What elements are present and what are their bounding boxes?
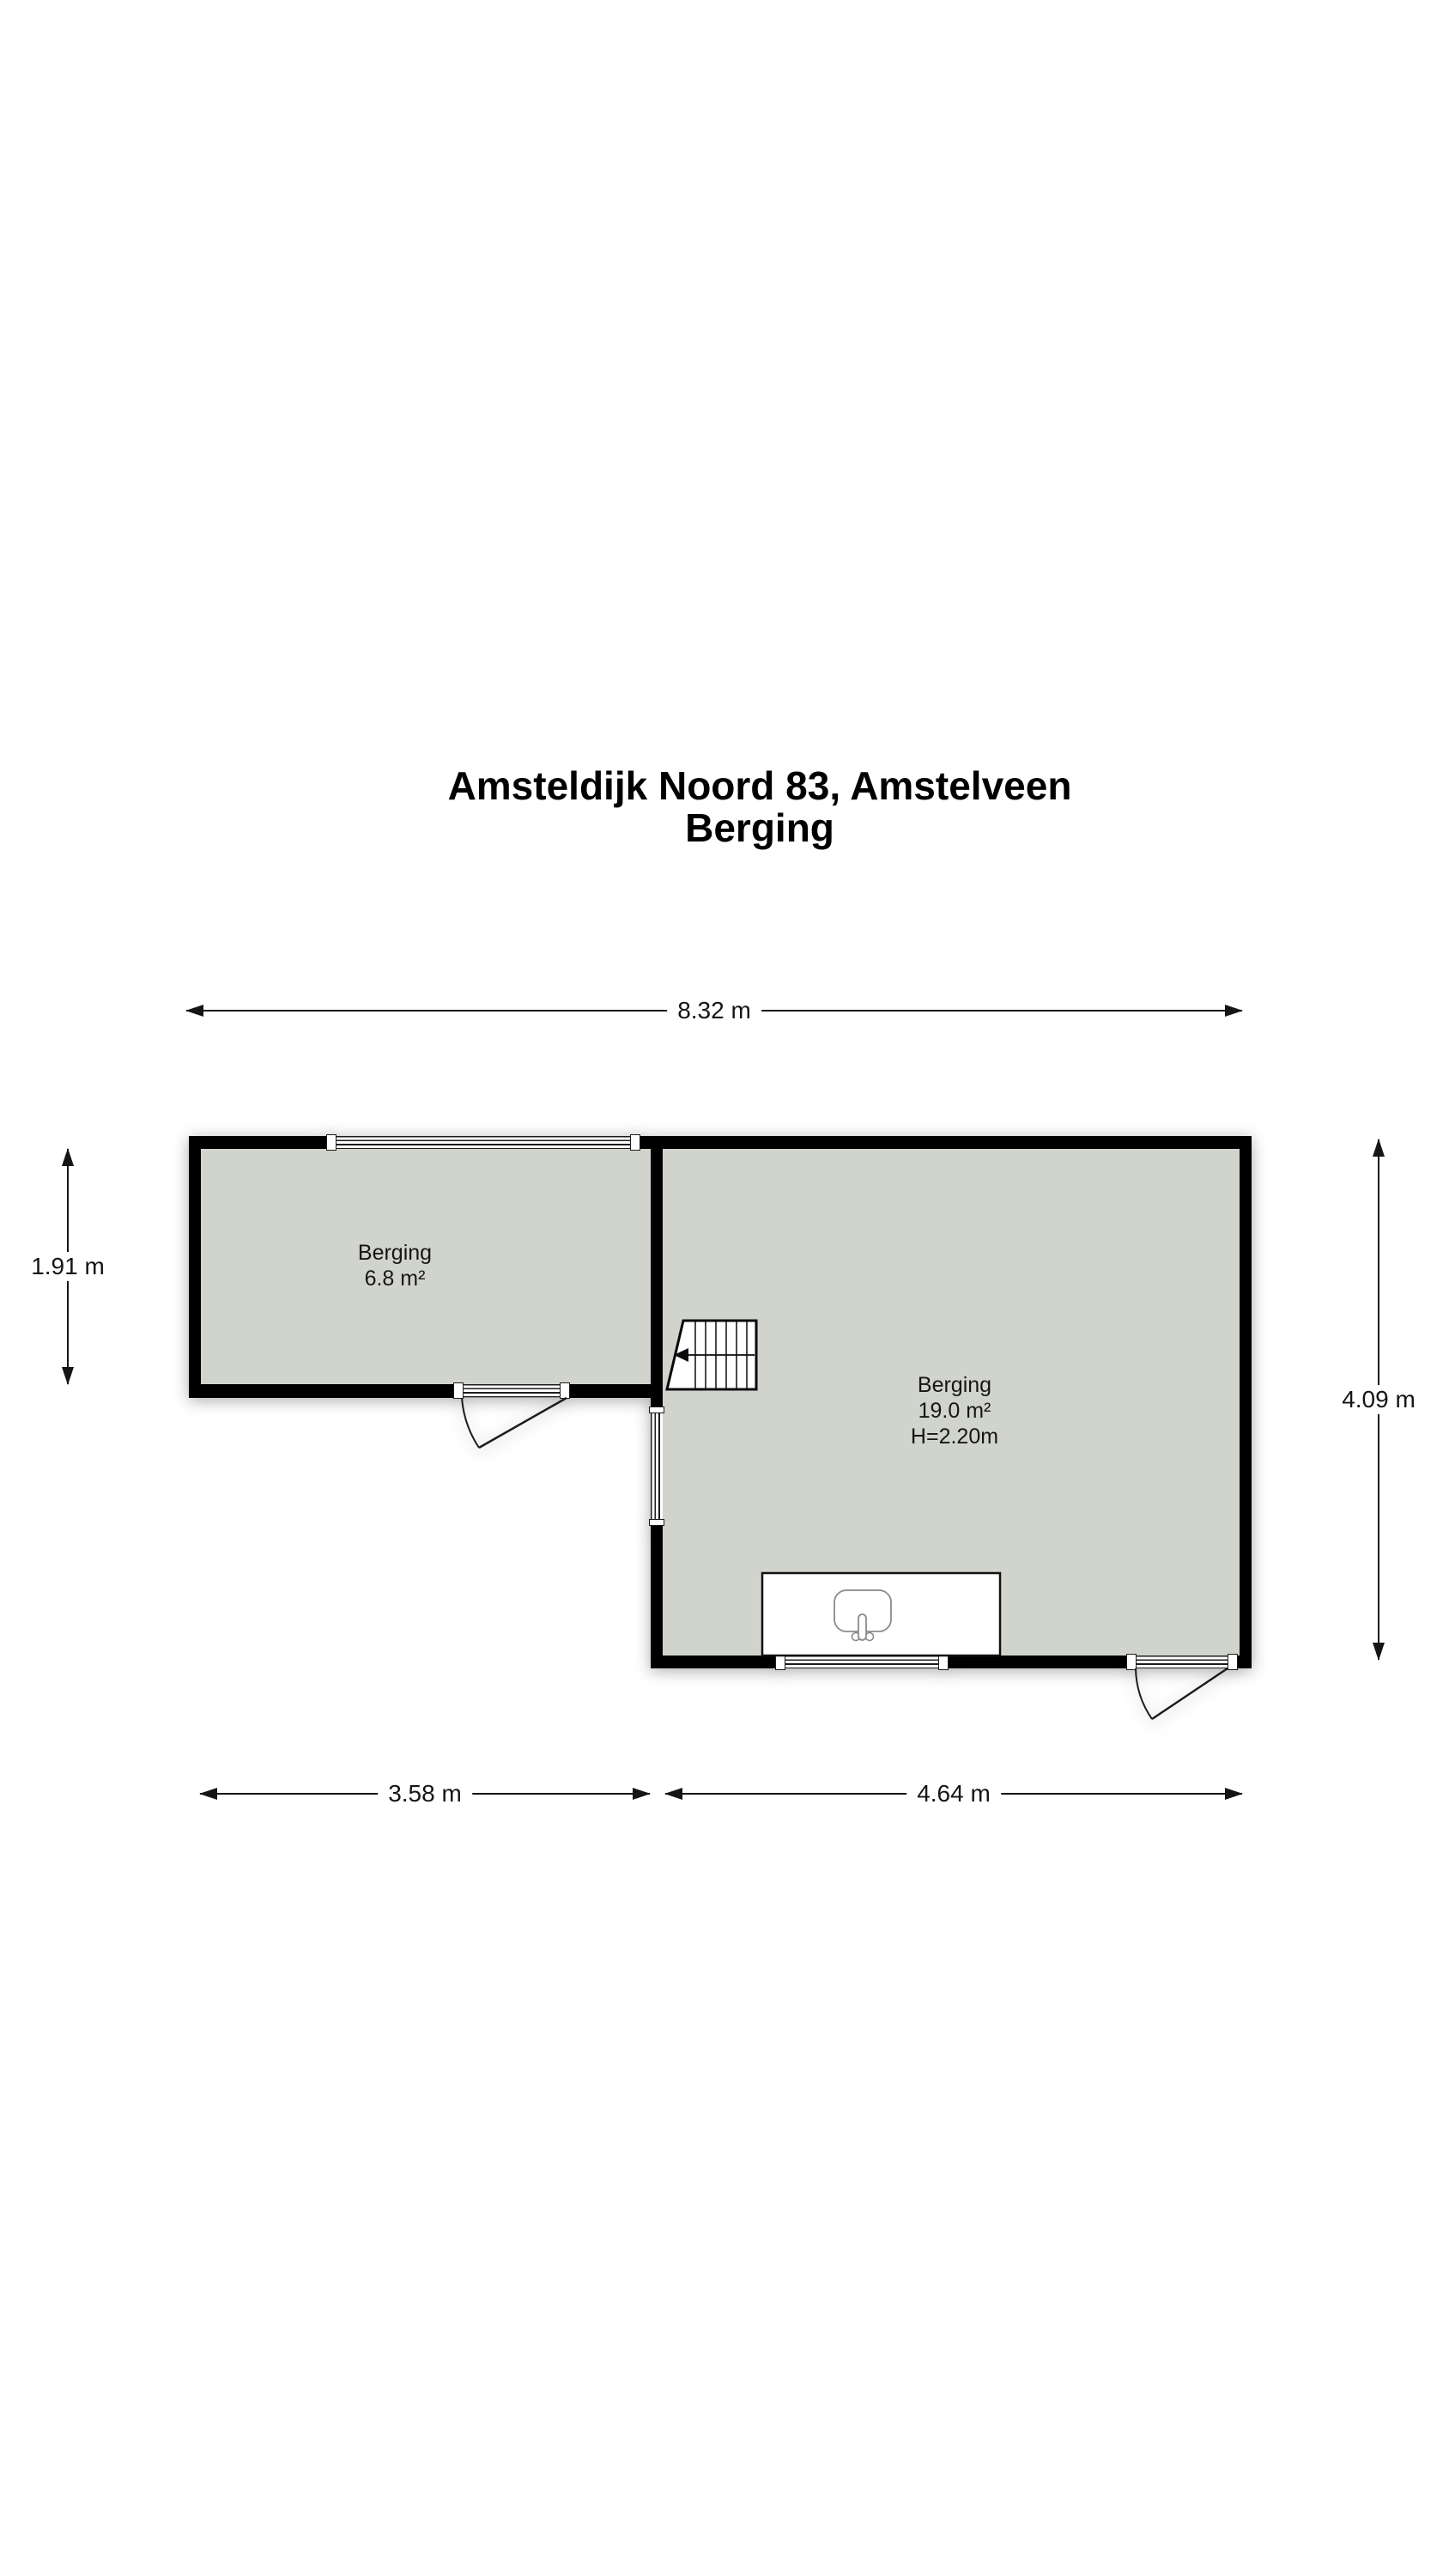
window-right-room-west [651,1406,663,1526]
wall-top-left-room-a [189,1136,326,1149]
room-label-right: Berging 19.0 m² H=2.20m [826,1372,1083,1449]
plan-title-address: Amsteldijk Noord 83, Amstelveen [330,765,1189,807]
arrowhead-down-icon [62,1367,74,1385]
wall-bottom-left-room-b [570,1384,651,1398]
sink-unit [761,1571,1002,1657]
arrowhead-left-icon [185,1005,203,1017]
window-jamb [649,1406,664,1413]
floorplan-page: { "title": { "line1": "Amsteldijk Noord … [0,0,1449,2576]
room-area: 19.0 m² [826,1398,1083,1424]
dimension-total-width: 8.32 m [186,1010,1242,1012]
arrowhead-up-icon [1373,1139,1385,1157]
dimension-bottom-left-label: 3.58 m [378,1779,472,1808]
wall-top-left-room-b [640,1136,651,1149]
dimension-bottom-left-width: 3.58 m [200,1793,650,1795]
arrowhead-right-icon [1225,1788,1243,1800]
window-jamb [630,1134,640,1151]
plan-title: Amsteldijk Noord 83, Amstelveen Berging [330,765,1189,849]
window-glazing [651,1413,663,1519]
room-label-left: Berging 6.8 m² [266,1240,524,1291]
window-left-room-north [326,1136,640,1149]
arrowhead-left-icon [199,1788,217,1800]
arrowhead-right-icon [1225,1005,1243,1017]
dimension-left-height-label: 1.91 m [21,1252,115,1281]
wall-bottom-left-room-a [189,1384,453,1398]
window-jamb [649,1519,664,1526]
arrowhead-up-icon [62,1148,74,1166]
dimension-left-height: 1.91 m [67,1149,69,1384]
window-glazing [336,1136,631,1149]
wall-top-right-room [651,1136,1252,1149]
dimension-right-height-label: 4.09 m [1331,1385,1426,1414]
dimension-total-width-label: 8.32 m [667,996,761,1025]
wall-dividing-upper [651,1149,663,1406]
dimension-bottom-right-label: 4.64 m [906,1779,1001,1808]
window-glazing [785,1656,939,1668]
window-right-room-south [775,1656,949,1668]
dimension-bottom-right-width: 4.64 m [665,1793,1242,1795]
stairs [665,1317,760,1393]
wall-bottom-right-room-b [949,1656,1126,1668]
arrowhead-down-icon [1373,1643,1385,1661]
room-area: 6.8 m² [266,1266,524,1291]
wall-east-right-room [1240,1149,1252,1668]
arrowhead-right-icon [633,1788,651,1800]
door-swing-right-room [1131,1667,1243,1727]
arrowhead-left-icon [664,1788,682,1800]
room-ceiling-height: H=2.20m [826,1424,1083,1449]
room-name: Berging [826,1372,1083,1398]
wall-bottom-right-room-a [651,1656,775,1668]
window-jamb [326,1134,336,1151]
dimension-right-height: 4.09 m [1378,1139,1379,1660]
door-swing-left-room [446,1396,575,1456]
wall-west-right-room-lower [651,1526,663,1656]
room-name: Berging [266,1240,524,1266]
plan-title-floor: Berging [330,807,1189,849]
wall-west-left-room [189,1136,201,1398]
